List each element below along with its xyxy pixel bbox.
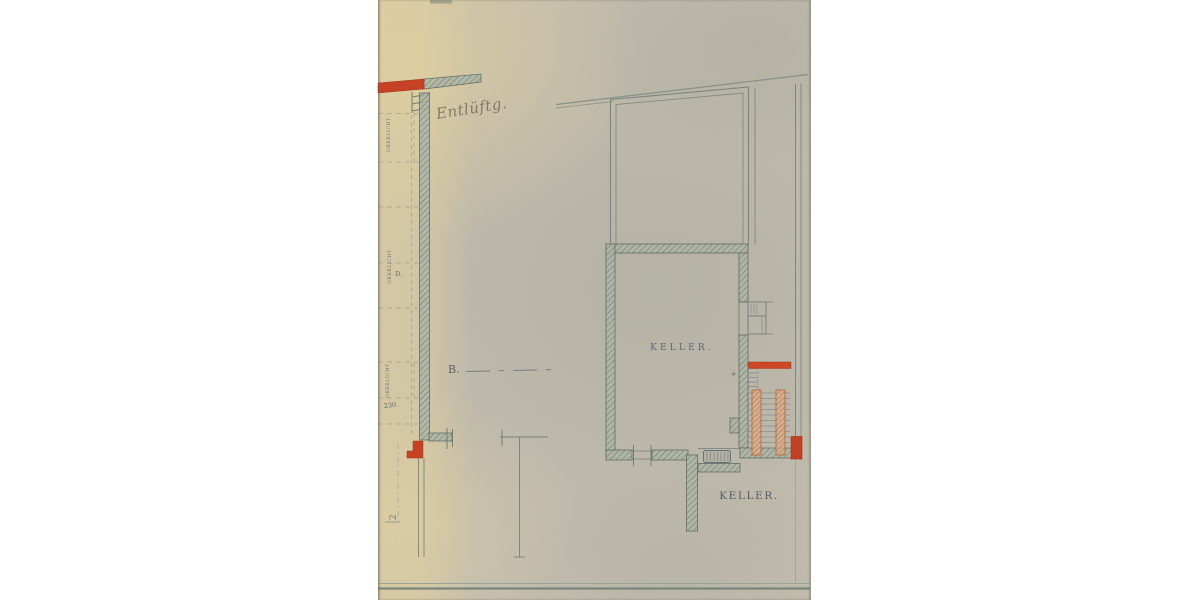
paper-grain [378,0,811,600]
floorplan-drawing: OBERLICHT OBERLICHT OBERLICHT D. 230 B. … [0,0,1200,600]
scanned-drawing-page: OBERLICHT OBERLICHT OBERLICHT D. 230 B. … [0,0,1200,600]
